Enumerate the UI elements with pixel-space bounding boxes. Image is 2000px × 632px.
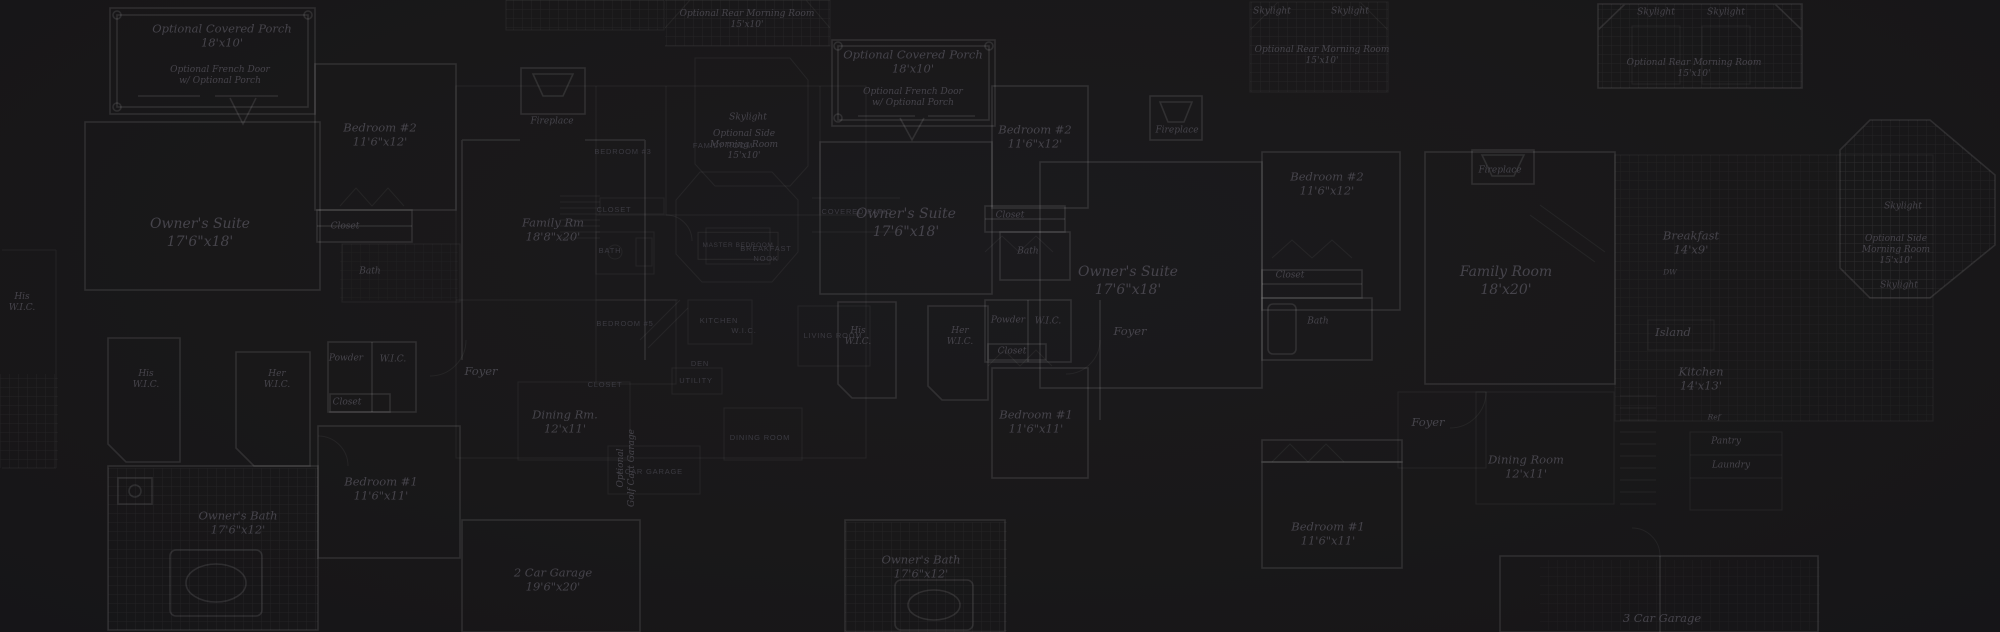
- middle_plan-closet-2-label: Closet: [998, 347, 1027, 358]
- left_plan-his-wic-label: His W.I.C.: [133, 369, 159, 391]
- right_plan-kitchen-label: Kitchen 14'x13': [1679, 365, 1724, 394]
- right_plan-island-label: Island: [1655, 325, 1691, 339]
- middle_plan-wic-label: W.I.C.: [1035, 317, 1061, 328]
- right_plan-optional-side-morning-room-label: Optional Side Morning Room 15'x10': [1862, 234, 1930, 266]
- left_plan-bedroom-2-label: Bedroom #2 11'6"x12': [343, 121, 416, 150]
- middle_plan-owners-bath-label: Owner's Bath 17'6"x12': [881, 553, 960, 582]
- left_plan-owners-bath-label: Owner's Bath 17'6"x12': [198, 509, 277, 538]
- middle_plan-owners-suite-label: Owner's Suite 17'6"x18': [856, 205, 956, 241]
- center_plan-breakfast-nook-label: BREAKFAST NOOK: [740, 244, 791, 264]
- center_plan-bath-label: BATH: [599, 246, 622, 256]
- right_plan-fireplace-label: Fireplace: [1478, 166, 1521, 177]
- left_plan-dining-rm-label: Dining Rm. 12'x11': [532, 408, 598, 437]
- middle_plan-skylight-1-label: Skylight: [1253, 7, 1291, 18]
- left_plan-bath-label: Bath: [359, 267, 380, 278]
- right_plan-owners-suite-label: Owner's Suite 17'6"x18': [1078, 263, 1178, 299]
- right_plan-skylight-4-label: Skylight: [1880, 281, 1918, 292]
- left_plan-family-rm-label: Family Rm 18'8"x20': [522, 216, 584, 245]
- left_plan-edge-his-wic-label: His W.I.C.: [9, 292, 35, 314]
- right_plan-bedroom-2-label: Bedroom #2 11'6"x12': [1290, 170, 1363, 199]
- right_plan-optional-rear-morning-room-label: Optional Rear Morning Room 15'x10': [1627, 58, 1762, 80]
- right_plan-skylight-3-label: Skylight: [1884, 202, 1922, 213]
- right_plan-skylight-1-label: Skylight: [1637, 8, 1675, 19]
- right_plan-dw-label: DW: [1663, 269, 1677, 278]
- right_plan-skylight-2-label: Skylight: [1707, 8, 1745, 19]
- left_plan-bedroom-1-label: Bedroom #1 11'6"x11': [344, 475, 417, 504]
- center_plan-utility-label: UTILITY: [679, 376, 713, 386]
- left_plan-closet-label: Closet: [331, 222, 360, 233]
- middle_plan-optional-covered-porch-label: Optional Covered Porch 18'x10': [843, 48, 983, 77]
- center_plan-bedroom-5-label: BEDROOM #5: [596, 319, 653, 329]
- center_plan-dining-room-label: DINING ROOM: [730, 433, 790, 443]
- right_plan-dining-room-label: Dining Room 12'x11': [1488, 453, 1564, 482]
- left_plan-two-car-garage-label: 2 Car Garage 19'6"x20': [514, 566, 592, 595]
- center_plan-wic-label: W.I.C.: [731, 326, 756, 336]
- middle_plan-optional-rear-morning-room-label: Optional Rear Morning Room 15'x10': [1255, 45, 1390, 67]
- floorplan-background-collage: Optional Covered Porch 18'x10'Optional F…: [0, 0, 2000, 632]
- left_plan-optional-french-door-label: Optional French Door w/ Optional Porch: [170, 65, 270, 87]
- center_plan-closet-label: CLOSET: [597, 205, 632, 215]
- right_plan-family-room-label: Family Room 18'x20': [1460, 263, 1552, 299]
- center_plan-two-car-garage-label: 2 CAR GARAGE: [617, 467, 683, 477]
- middle_plan-her-wic-label: Her W.I.C.: [947, 326, 973, 348]
- left_plan-powder-label: Powder: [329, 354, 363, 365]
- left_plan-closet-2-label: Closet: [333, 398, 362, 409]
- right_plan-breakfast-label: Breakfast 14'x9': [1663, 229, 1719, 258]
- center_plan-kitchen-label: KITCHEN: [700, 316, 739, 326]
- left_plan-optional-rear-morning-room-label: Optional Rear Morning Room 15'x10': [680, 9, 815, 31]
- middle_plan-closet-label: Closet: [996, 211, 1025, 222]
- right_plan-three-car-garage-label: 3 Car Garage: [1623, 611, 1701, 625]
- middle_plan-skylight-2-label: Skylight: [1331, 7, 1369, 18]
- left_plan-fireplace-label: Fireplace: [530, 117, 573, 128]
- middle_plan-powder-label: Powder: [991, 316, 1025, 327]
- center_plan-family-room-label: FAMILY ROOM: [693, 141, 753, 151]
- middle_plan-foyer-label: Foyer: [1113, 324, 1146, 338]
- center_plan-den-label: DEN: [691, 359, 709, 369]
- right_plan-foyer-label: Foyer: [1411, 415, 1444, 429]
- middle_plan-bedroom-1-label: Bedroom #1 11'6"x11': [999, 408, 1072, 437]
- middle_plan-bedroom-2-label: Bedroom #2 11'6"x12': [998, 123, 1071, 152]
- left_plan-optional-covered-porch-label: Optional Covered Porch 18'x10': [152, 22, 292, 51]
- center_plan-closet-2-label: CLOSET: [588, 380, 623, 390]
- left_plan-her-wic-label: Her W.I.C.: [264, 369, 290, 391]
- right_plan-bath-label: Bath: [1307, 317, 1328, 328]
- left_plan-wic-label: W.I.C.: [380, 355, 406, 366]
- left_plan-foyer-label: Foyer: [464, 364, 497, 378]
- right_plan-bedroom-1-label: Bedroom #1 11'6"x11': [1291, 520, 1364, 549]
- right_plan-pantry-label: Pantry: [1711, 437, 1741, 448]
- right_plan-laundry-label: Laundry: [1712, 461, 1750, 472]
- left_plan-owners-suite-label: Owner's Suite 17'6"x18': [150, 215, 250, 251]
- middle_plan-his-wic-label: His W.I.C.: [845, 326, 871, 348]
- middle_plan-optional-french-door-label: Optional French Door w/ Optional Porch: [863, 87, 963, 109]
- left_plan-skylight-label: Skylight: [729, 113, 767, 124]
- right_plan-closet-label: Closet: [1276, 271, 1305, 282]
- middle_plan-bath-label: Bath: [1017, 247, 1038, 258]
- right_plan-ref-label: Ref: [1708, 414, 1721, 423]
- center_plan-bedroom-3-label: BEDROOM #3: [594, 147, 651, 157]
- middle_plan-fireplace-label: Fireplace: [1155, 126, 1198, 137]
